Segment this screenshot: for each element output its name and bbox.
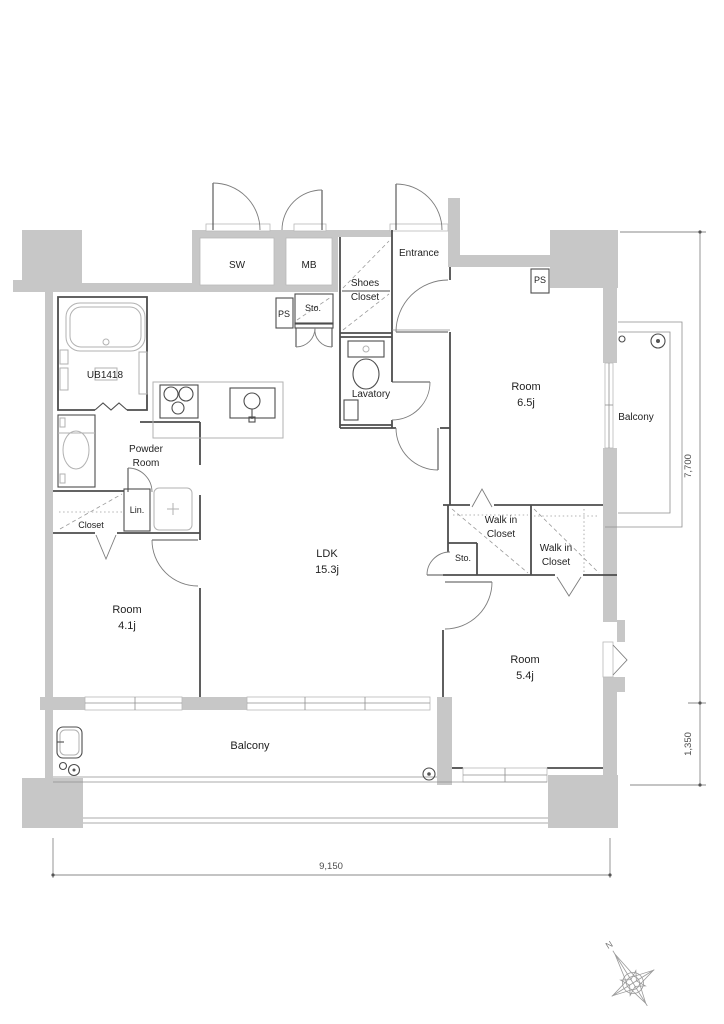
dim-east-balcony: 1,350 xyxy=(683,732,694,756)
compass-north-label: N xyxy=(604,939,615,951)
closet-bifold-door xyxy=(96,535,116,559)
exterior-doors xyxy=(213,183,442,230)
room41-door xyxy=(152,540,198,586)
room-54 xyxy=(443,582,627,782)
toilet-bowl xyxy=(353,359,379,389)
label-powder-1: Powder xyxy=(129,444,164,455)
dim-east-main: 7,700 xyxy=(683,454,694,478)
label-ps-hall: PS xyxy=(278,309,290,319)
label-room65-size: 6.5j xyxy=(517,397,535,409)
label-room41-name: Room xyxy=(112,604,141,616)
wic-b-opening xyxy=(557,577,581,596)
kitchen-sink xyxy=(244,393,260,409)
label-sw: SW xyxy=(229,260,246,271)
walkin-closets xyxy=(427,489,617,596)
compass-rose: N xyxy=(585,927,668,1019)
room54-side-window xyxy=(603,642,613,677)
label-wic-a-1: Walk in xyxy=(485,515,517,526)
storage-door-swing xyxy=(427,552,450,575)
wic-a-opening xyxy=(472,489,492,507)
label-storage-hall: Sto. xyxy=(305,303,321,313)
dim-south: 9,150 xyxy=(319,861,343,872)
label-shoes-closet-2: Closet xyxy=(351,292,380,303)
label-linen: Lin. xyxy=(130,505,145,515)
label-ps-east: PS xyxy=(534,275,546,285)
label-balcony-south: Balcony xyxy=(230,740,270,752)
room65-windows xyxy=(605,363,613,448)
label-powder-2: Room xyxy=(133,458,160,469)
bathtub xyxy=(66,303,145,351)
room54-door-swing xyxy=(445,582,492,629)
label-ldk-name: LDK xyxy=(316,548,338,560)
balcony-drain xyxy=(60,763,67,770)
ldk-window xyxy=(247,697,430,710)
room41-window xyxy=(85,697,182,710)
label-wic-b-2: Closet xyxy=(542,557,571,568)
label-storage-ldk: Sto. xyxy=(455,553,471,563)
label-room41-size: 4.1j xyxy=(118,620,136,632)
south-windows xyxy=(85,697,430,710)
label-room54-size: 5.4j xyxy=(516,670,534,682)
label-wic-b-1: Walk in xyxy=(540,543,572,554)
label-wic-a-2: Closet xyxy=(487,529,516,540)
powder-room-area xyxy=(53,415,200,697)
kitchen xyxy=(153,382,283,438)
label-ldk-size: 15.3j xyxy=(315,564,339,576)
room65-door-swing xyxy=(396,280,448,332)
entrance-door-swing xyxy=(396,184,442,230)
label-entrance: Entrance xyxy=(399,248,439,259)
bath-folding-door xyxy=(95,403,127,410)
wash-basin xyxy=(63,431,89,469)
label-closet: Closet xyxy=(78,520,104,530)
shower-unit xyxy=(60,350,68,364)
label-room65-name: Room xyxy=(511,381,540,393)
ldk-door-swing xyxy=(396,428,438,470)
label-lavatory: Lavatory xyxy=(352,389,390,400)
room41-door-swing xyxy=(152,540,198,586)
label-shoes-closet-1: Shoes xyxy=(351,278,379,289)
toilet-tank xyxy=(348,341,384,357)
unit-bath xyxy=(58,297,147,410)
lavatory-door-swing xyxy=(392,382,430,420)
label-balcony-east: Balcony xyxy=(618,412,654,423)
entrance-hall xyxy=(340,230,450,505)
floorplan-drawing: N SW MB Entrance Shoes Closet PS Sto. PS… xyxy=(0,0,724,1024)
label-unit-bath: UB1418 xyxy=(87,370,124,381)
powder-door-swing xyxy=(128,468,152,492)
label-mb: MB xyxy=(302,260,317,271)
label-room54-name: Room xyxy=(510,654,539,666)
floorplan-canvas: N SW MB Entrance Shoes Closet PS Sto. PS… xyxy=(0,0,724,1024)
